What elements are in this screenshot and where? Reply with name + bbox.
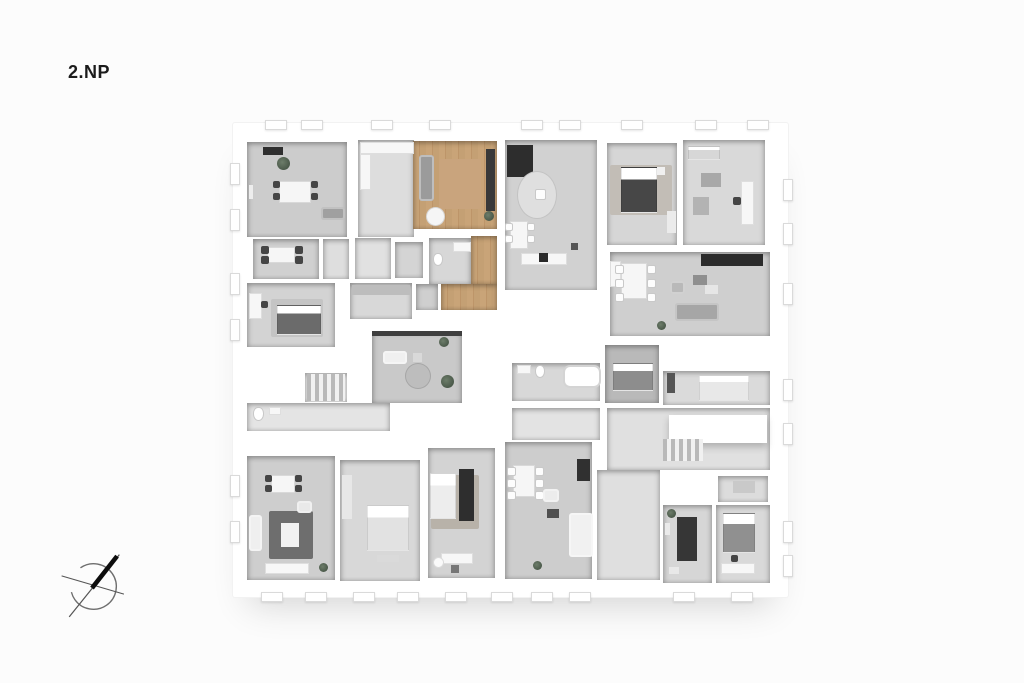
window-mark (695, 120, 717, 130)
room-storage-w (323, 239, 349, 279)
window-mark (230, 273, 240, 295)
bed (430, 473, 456, 519)
chair (295, 485, 302, 492)
chair (527, 223, 535, 231)
armchair (297, 501, 312, 513)
bed (723, 513, 755, 553)
window-mark (621, 120, 643, 130)
vanity (441, 553, 473, 564)
vanity (721, 563, 755, 574)
armchair (535, 189, 546, 200)
room-unit-corridor-highlight (441, 284, 497, 310)
stool (451, 565, 459, 573)
washbasin (517, 365, 531, 374)
closet (342, 475, 352, 519)
chair (615, 293, 624, 302)
plant (439, 337, 449, 347)
room-hall-c (355, 238, 391, 279)
dining-table (279, 181, 311, 203)
window-mark (353, 592, 375, 602)
sideboard (263, 147, 283, 155)
radiator (667, 373, 675, 393)
window-mark (261, 592, 283, 602)
washbasin (433, 557, 444, 568)
chair (311, 193, 318, 200)
floorplan (233, 123, 788, 597)
window-mark (230, 319, 240, 341)
wall-frame (693, 275, 707, 285)
stairs (663, 439, 703, 461)
bed (367, 505, 409, 551)
chair (505, 235, 513, 243)
stairs (307, 374, 345, 401)
bathtub (563, 365, 601, 388)
washbasin (269, 407, 281, 415)
window-mark (559, 120, 581, 130)
plant (441, 375, 454, 388)
kitchenette (577, 459, 590, 481)
bench (377, 555, 399, 562)
plant (319, 563, 328, 572)
window-mark (569, 592, 591, 602)
window-mark (783, 555, 793, 577)
window-mark (731, 592, 753, 602)
window-mark (230, 209, 240, 231)
chair (265, 485, 272, 492)
chair (261, 256, 269, 264)
chair (615, 279, 624, 288)
chair (527, 235, 535, 243)
window-mark (783, 179, 793, 201)
plant (657, 321, 666, 330)
nightstand (657, 167, 665, 175)
sofa (249, 515, 262, 551)
window-mark (673, 592, 695, 602)
window-mark (783, 379, 793, 401)
sofa (569, 513, 593, 557)
window-mark (397, 592, 419, 602)
sofa (419, 155, 434, 201)
chair (261, 301, 268, 308)
wardrobe (667, 211, 676, 233)
chair (647, 293, 656, 302)
window-mark (521, 120, 543, 130)
sofa (383, 351, 407, 364)
chair (535, 479, 544, 488)
chair (273, 193, 280, 200)
coffee-table (413, 353, 422, 362)
chair (647, 279, 656, 288)
window-mark (305, 592, 327, 602)
room-closet-c (416, 284, 438, 310)
hob (539, 253, 548, 262)
floor-label: 2.NP (68, 62, 110, 83)
sofa (675, 303, 719, 321)
sofa (321, 207, 345, 220)
rug (439, 159, 481, 209)
dining-table (513, 465, 535, 497)
plant (277, 157, 290, 170)
bed (277, 305, 321, 335)
wall-dark (372, 331, 462, 336)
toilet (433, 253, 443, 266)
chair (615, 265, 624, 274)
plant (533, 561, 542, 570)
bed (621, 167, 657, 213)
toys (693, 197, 709, 215)
wardrobe (352, 285, 410, 295)
wardrobe (677, 517, 697, 561)
window-mark (783, 423, 793, 445)
window-mark (531, 592, 553, 602)
chair (265, 475, 272, 482)
kitchen-counter (360, 142, 414, 154)
chair (535, 467, 544, 476)
room-unit-hall-highlight (471, 236, 497, 284)
desk (741, 181, 754, 225)
window-mark (301, 120, 323, 130)
chair (295, 475, 302, 482)
window-mark (491, 592, 513, 602)
room-corridor-s (597, 470, 660, 580)
desk (267, 247, 295, 263)
chair (273, 181, 280, 188)
rug (405, 363, 431, 389)
wall-frame (249, 185, 253, 199)
washbasin (453, 242, 471, 252)
window-mark (265, 120, 287, 130)
coffee-table (705, 285, 718, 294)
window-mark (429, 120, 451, 130)
room-corridor-c2 (512, 408, 600, 440)
window-mark (445, 592, 467, 602)
mirror (733, 481, 755, 493)
chair (647, 265, 656, 274)
chair (731, 555, 738, 562)
dining-table (271, 475, 295, 493)
armchair (670, 281, 685, 294)
window-mark (230, 475, 240, 497)
coffee-table (547, 509, 559, 518)
wardrobe (459, 469, 474, 521)
chair (505, 223, 513, 231)
tv-bench (265, 563, 309, 574)
kitchen-dark (701, 254, 763, 266)
window-mark (230, 163, 240, 185)
room-shower-c (395, 242, 423, 278)
window-mark (783, 223, 793, 245)
chair (295, 246, 303, 254)
window-mark (747, 120, 769, 130)
chair (261, 246, 269, 254)
bed (613, 363, 653, 391)
window-mark (371, 120, 393, 130)
round-table (426, 207, 445, 226)
chair (295, 256, 303, 264)
chair (507, 491, 516, 500)
plant (667, 509, 676, 518)
toilet (535, 365, 545, 378)
bed (699, 375, 749, 401)
dining-table (621, 263, 647, 299)
chair (507, 467, 516, 476)
bed (688, 146, 720, 160)
north-arrow-icon (54, 543, 130, 627)
chair (311, 181, 318, 188)
armchair (543, 489, 559, 502)
stool (669, 567, 679, 574)
wall-frame (665, 523, 670, 535)
window-mark (783, 283, 793, 305)
chair (733, 197, 741, 205)
plant (484, 211, 494, 221)
toilet (253, 407, 264, 421)
chair (507, 479, 516, 488)
stool (571, 243, 578, 250)
coffee-table (281, 523, 299, 547)
wardrobe (486, 149, 495, 211)
kitchen-counter (360, 154, 371, 190)
window-mark (783, 521, 793, 543)
window-mark (230, 521, 240, 543)
toys (701, 173, 721, 187)
